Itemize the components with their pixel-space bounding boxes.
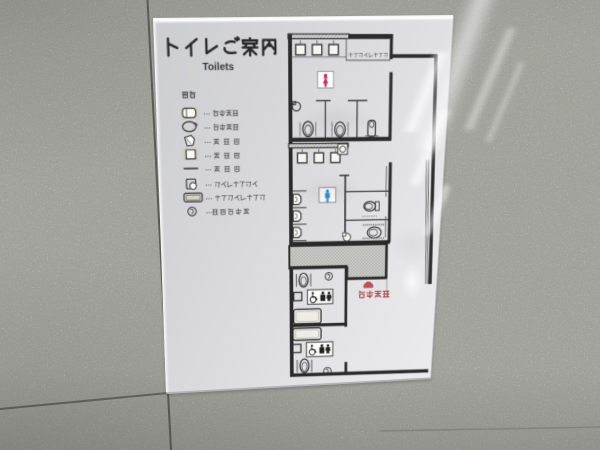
svg-text:Toilets: Toilets bbox=[202, 61, 234, 73]
